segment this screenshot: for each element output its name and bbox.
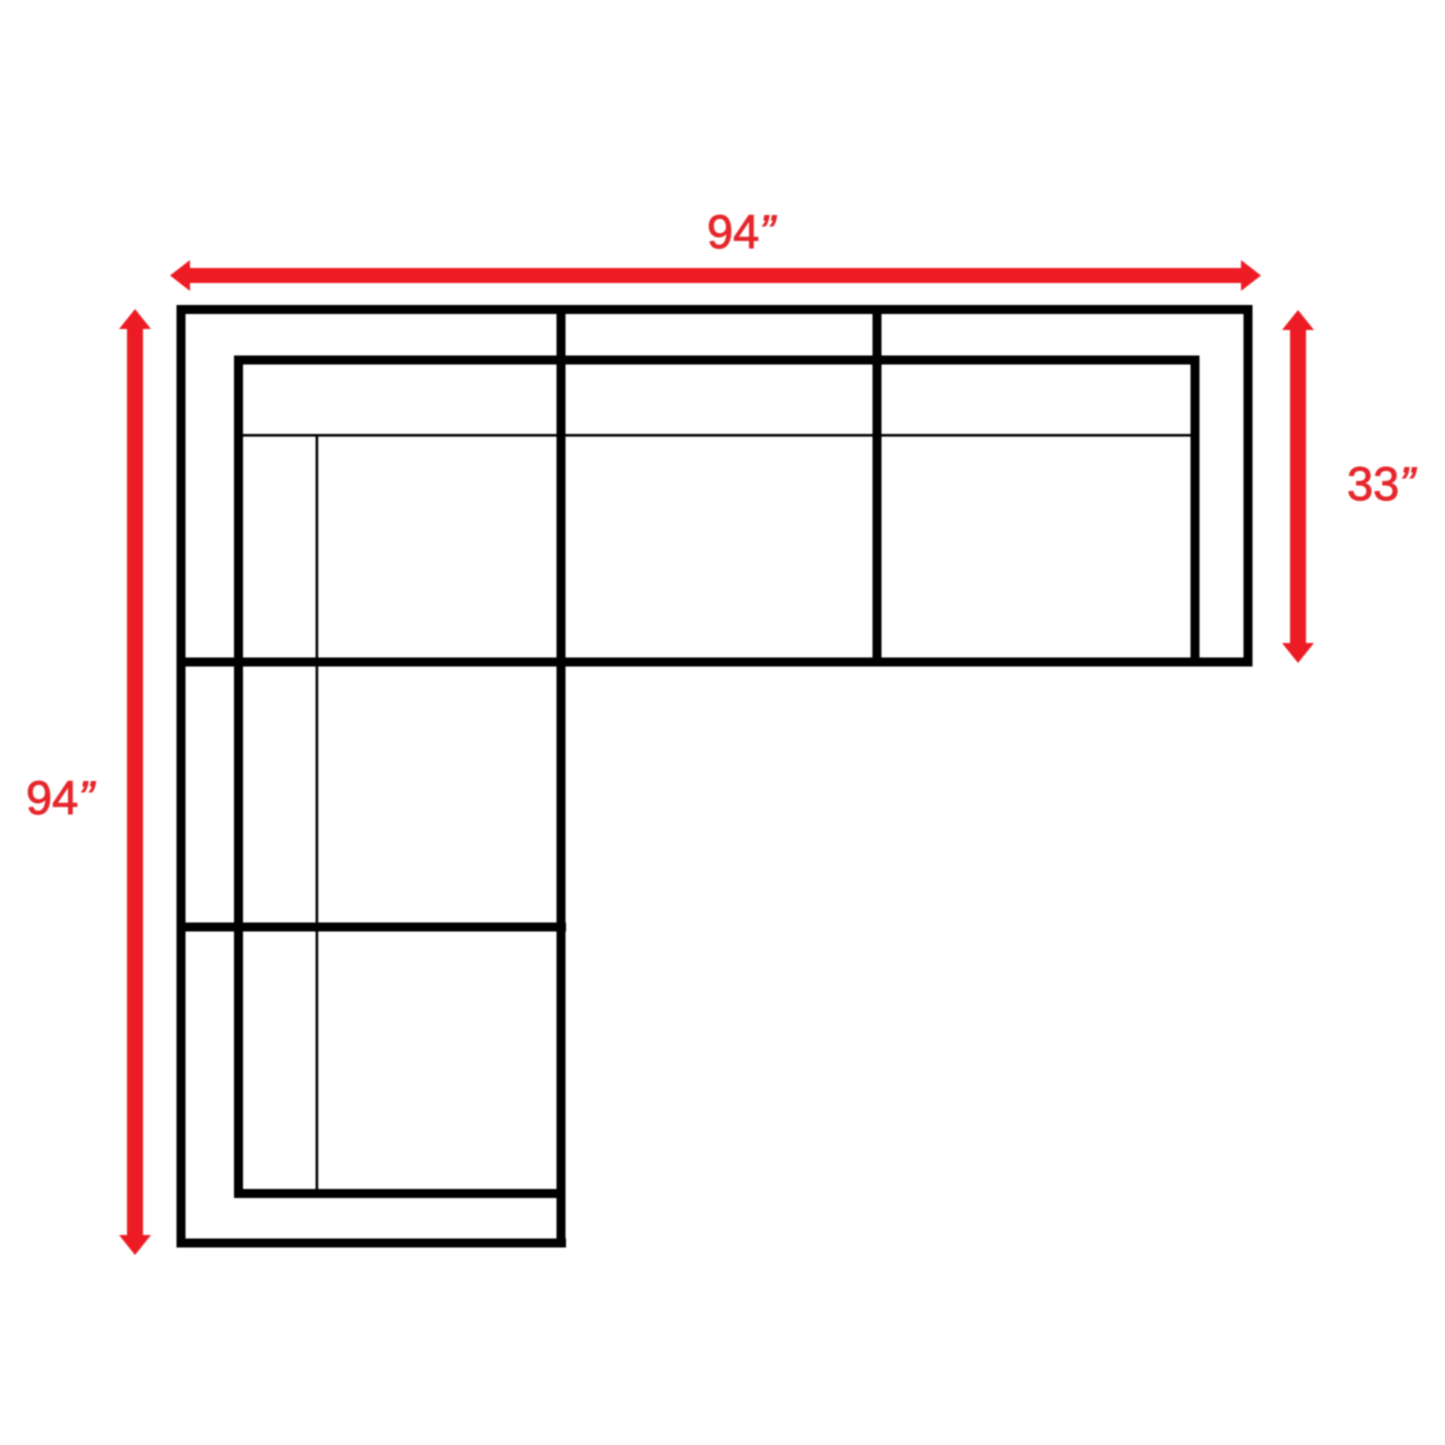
- svg-text:94”: 94”: [26, 771, 96, 824]
- svg-text:33”: 33”: [1347, 457, 1417, 510]
- svg-text:94”: 94”: [707, 205, 777, 258]
